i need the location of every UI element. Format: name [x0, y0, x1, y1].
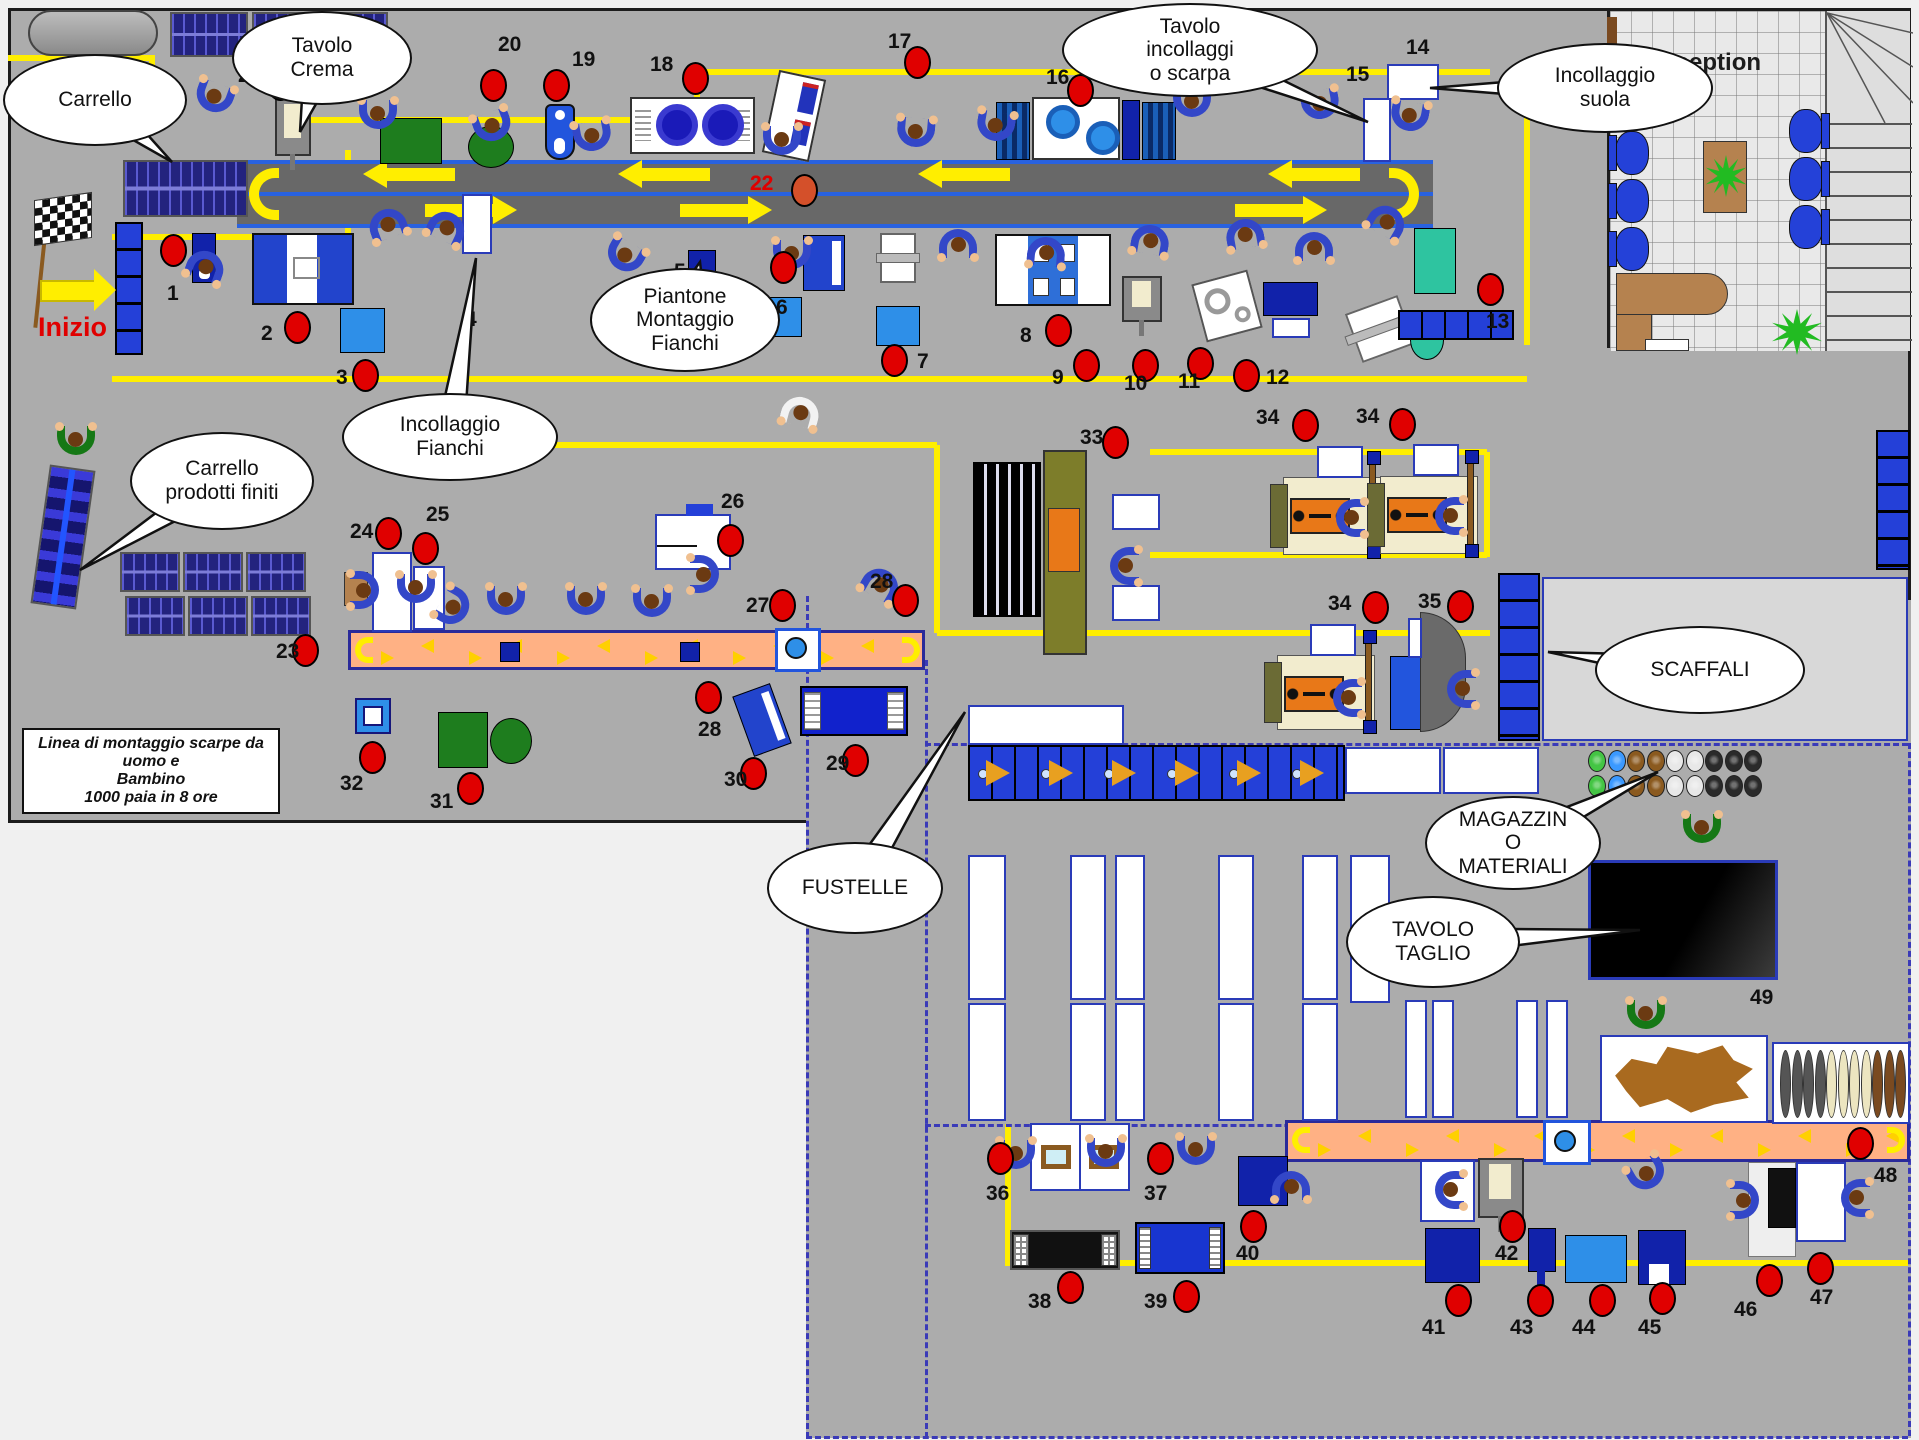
callout-tavolo-incollaggi-o-scarpa: Tavolo incollaggi o scarpa [1062, 3, 1318, 97]
callout-scaffali: SCAFFALI [1595, 626, 1805, 714]
callout-tavolo-crema: Tavolo Crema [232, 11, 412, 105]
callout-incollaggio-fianchi: Incollaggio Fianchi [342, 393, 558, 481]
callout-carrello-prodotti-finiti: Carrello prodotti finiti [130, 432, 314, 530]
factory-layout-diagram: ReceptionLinea di montaggio scarpe da uo… [0, 0, 1919, 1440]
callout-magazzino-materiali: MAGAZZIN O MATERIALI [1425, 796, 1601, 890]
callout-incollaggio-suola: Incollaggio suola [1497, 43, 1713, 133]
callout-piantone-montaggio-fianchi: Piantone Montaggio Fianchi [590, 268, 780, 372]
callout-fustelle: FUSTELLE [767, 842, 943, 934]
callout-tavolo-taglio: TAVOLO TAGLIO [1346, 896, 1520, 988]
callout-carrello: Carrello [3, 54, 187, 146]
